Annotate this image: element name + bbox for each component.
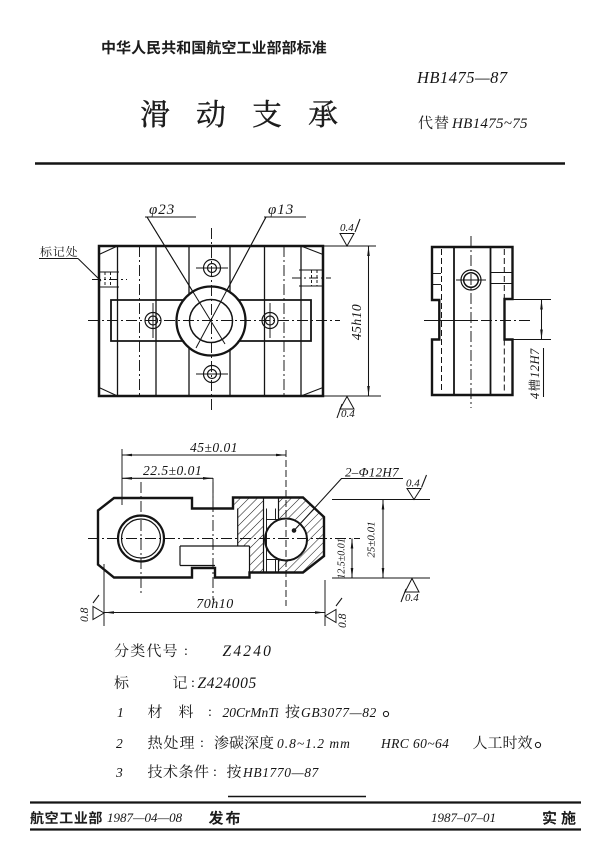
svg-text:2: 2 <box>116 736 123 751</box>
svg-text:2–Φ12H7: 2–Φ12H7 <box>345 465 399 480</box>
svg-text:Z424005: Z424005 <box>198 675 257 692</box>
svg-text:1987–07–01: 1987–07–01 <box>431 810 496 825</box>
svg-text:12.5±0.01: 12.5±0.01 <box>337 538 348 579</box>
svg-text:1987—04—08: 1987—04—08 <box>107 810 183 825</box>
svg-text:4: 4 <box>528 393 542 399</box>
svg-text:Z4240: Z4240 <box>223 643 274 660</box>
svg-text:0.8~1.2 mm: 0.8~1.2 mm <box>277 736 351 751</box>
svg-text:45±0.01: 45±0.01 <box>190 440 238 455</box>
svg-text:20CrMnTi: 20CrMnTi <box>223 705 280 720</box>
svg-text:1: 1 <box>117 705 124 720</box>
svg-text:3: 3 <box>115 765 123 780</box>
svg-text:45h10: 45h10 <box>349 304 364 340</box>
svg-text:GB3077—82: GB3077—82 <box>301 705 377 720</box>
svg-text::: : <box>184 644 188 659</box>
svg-text:φ13: φ13 <box>268 202 294 218</box>
svg-text:0.4: 0.4 <box>405 592 419 604</box>
svg-text:0.8: 0.8 <box>79 607 91 622</box>
svg-text:0.4: 0.4 <box>340 222 354 234</box>
svg-text:22.5±0.01: 22.5±0.01 <box>143 463 202 478</box>
svg-text:12H7: 12H7 <box>528 348 542 378</box>
svg-text:HB1770—87: HB1770—87 <box>242 765 320 780</box>
svg-text:HRC 60~64: HRC 60~64 <box>380 736 449 751</box>
svg-text:0.4: 0.4 <box>341 408 355 420</box>
svg-text:25±0.01: 25±0.01 <box>366 521 378 557</box>
svg-text::: : <box>200 736 204 751</box>
svg-text::: : <box>213 765 217 780</box>
svg-text:φ23: φ23 <box>149 202 175 218</box>
svg-text:0.8: 0.8 <box>337 613 349 628</box>
svg-text:0.4: 0.4 <box>406 478 420 490</box>
svg-text:HB1475~75: HB1475~75 <box>451 116 528 132</box>
svg-text::: : <box>191 676 195 691</box>
svg-text:HB1475—87: HB1475—87 <box>416 68 508 87</box>
svg-text:70h10: 70h10 <box>196 597 234 612</box>
svg-text::: : <box>208 705 212 720</box>
